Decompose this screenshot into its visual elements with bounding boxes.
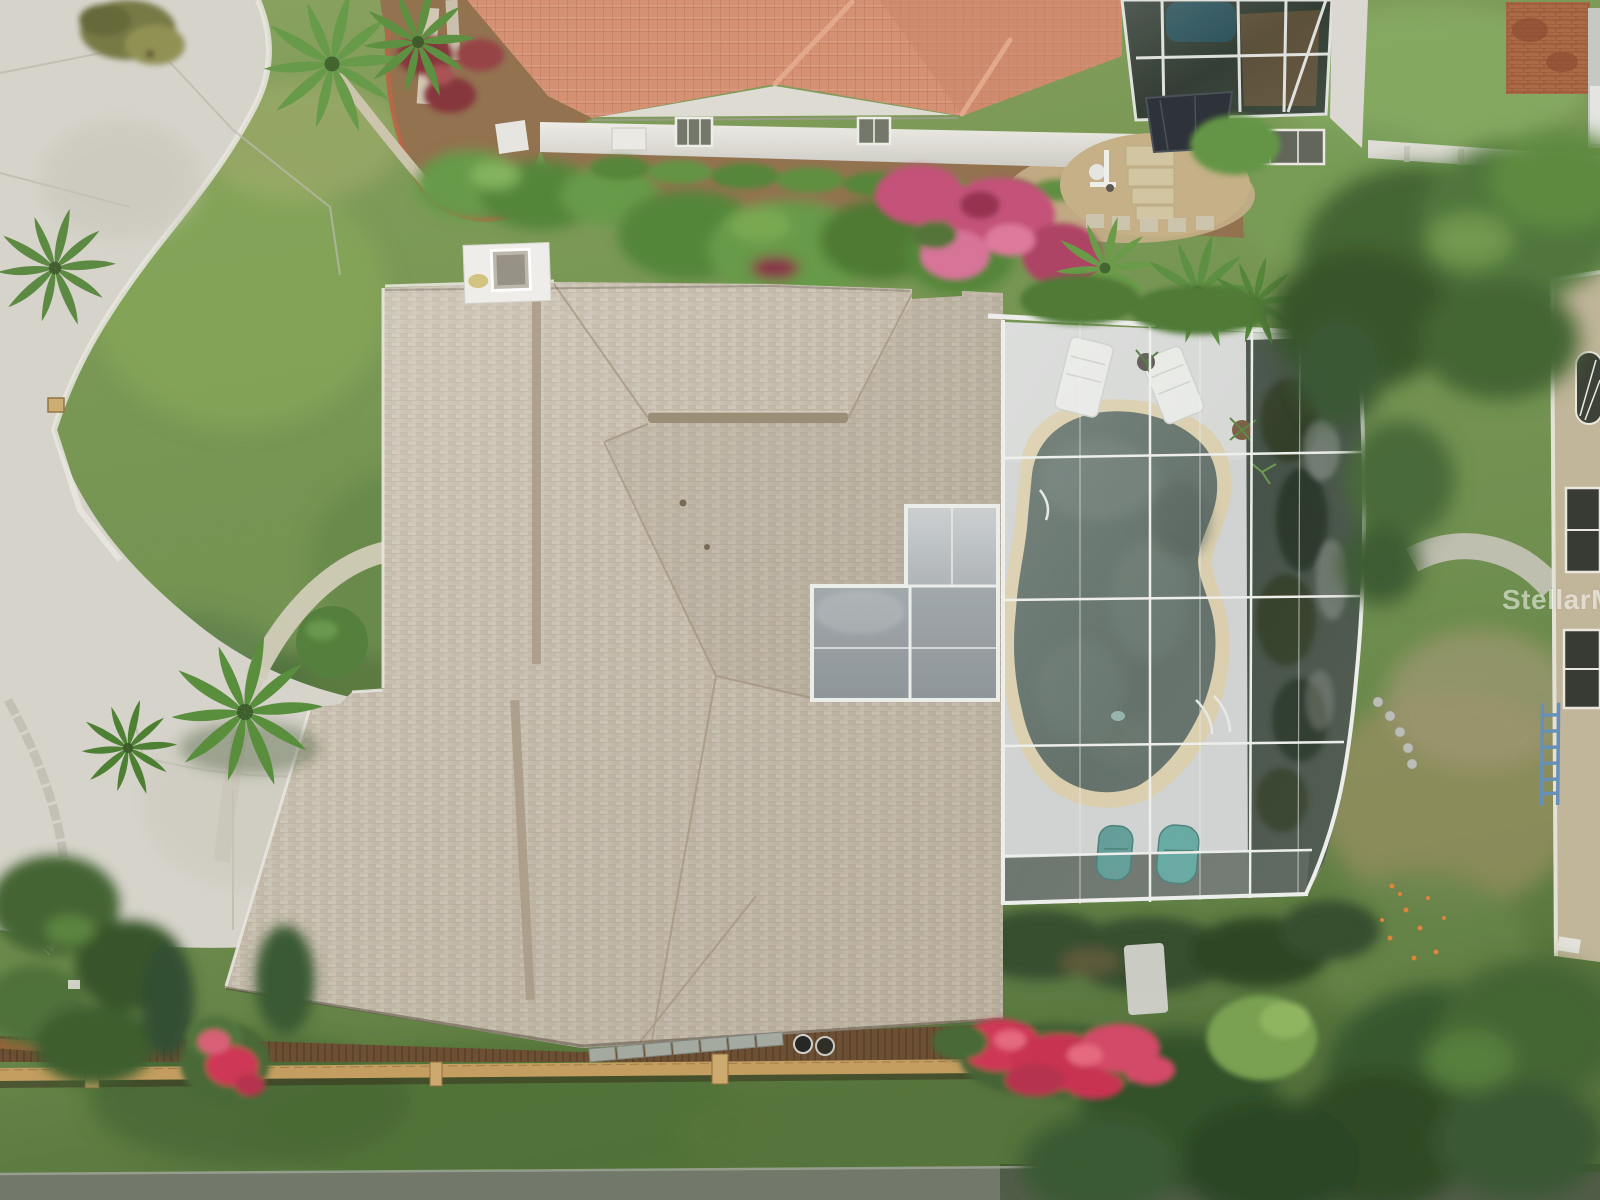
photo-canvas <box>0 0 1600 1200</box>
haze <box>0 0 1600 1200</box>
watermark: StellarMLS <box>1502 584 1600 616</box>
aerial-photo: StellarMLS <box>0 0 1600 1200</box>
